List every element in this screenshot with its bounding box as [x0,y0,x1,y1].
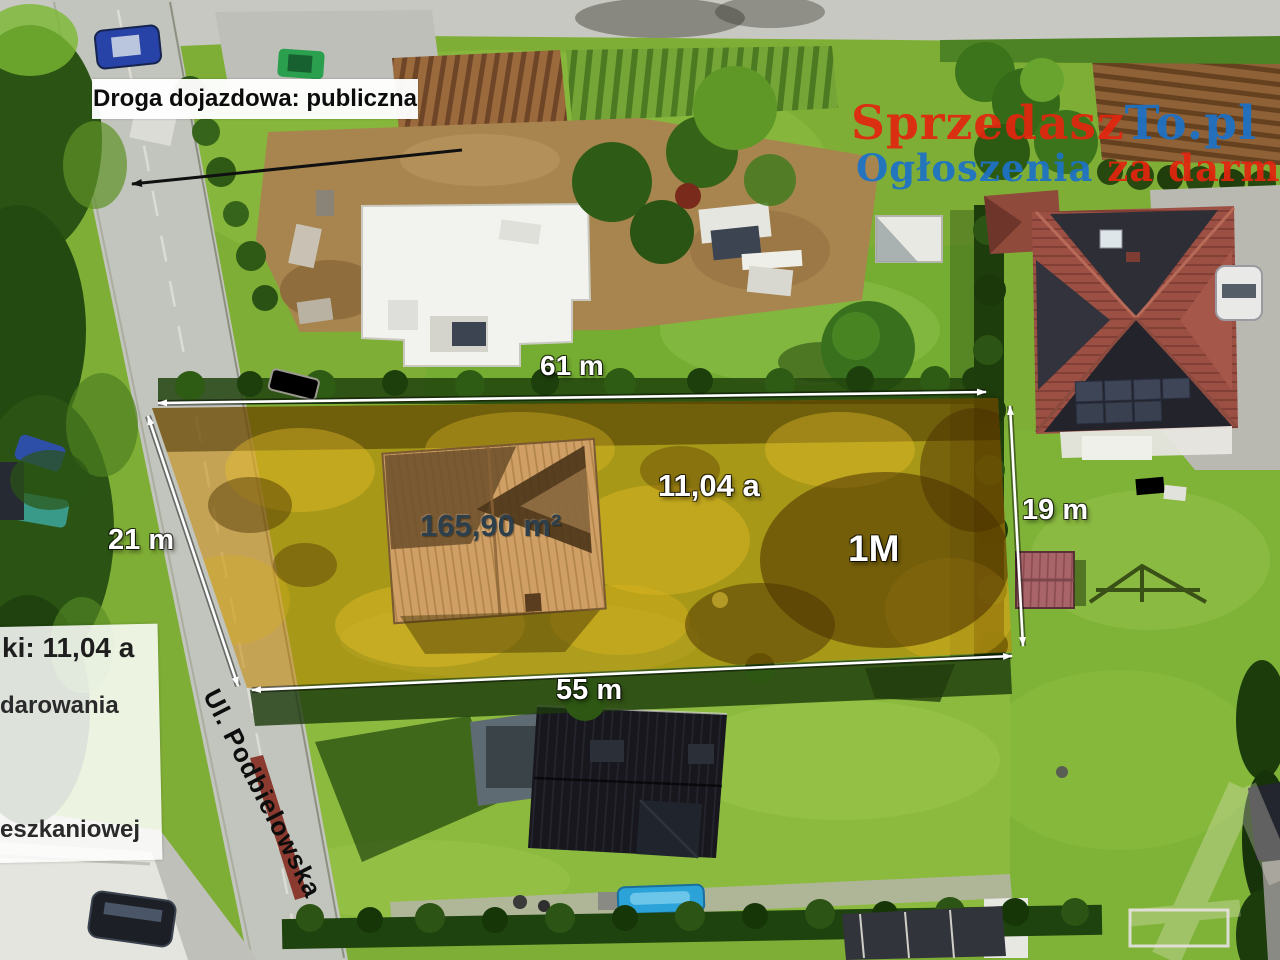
dimension-bottom-label: 55 m [556,674,622,707]
dimension-top-label: 61 m [540,350,604,382]
info-panel-line3: eszkaniowej [0,816,140,844]
white-car [1216,266,1262,320]
plot-area-label: 11,04 a [658,468,760,504]
white-shed [876,216,942,262]
brand-watermark-part1: Sprzedasz [851,96,1125,151]
house-area-label: 165,90 m² [420,508,561,544]
brand-tagline-part2: za darmo! [1107,146,1280,190]
zoning-label: 1M [848,528,899,570]
dimension-left-label: 21 m [108,524,174,557]
brand-watermark: SprzedaszTo.pl [851,96,1257,151]
brand-tagline-part1: Ogłoszenia [856,146,1093,190]
dimension-right-label: 19 m [1022,494,1088,527]
info-panel-line1: ki: 11,04 a [2,632,134,664]
brand-tagline: Ogłoszenia za darmo! [856,146,1280,190]
road-access-label: Droga dojazdowa: publiczna [92,79,418,119]
brand-watermark-part2: To.pl [1125,96,1257,151]
listing-photo-stage: Droga dojazdowa: publiczna SprzedaszTo.p… [0,0,1280,960]
info-panel-line2: darowania [0,692,119,720]
